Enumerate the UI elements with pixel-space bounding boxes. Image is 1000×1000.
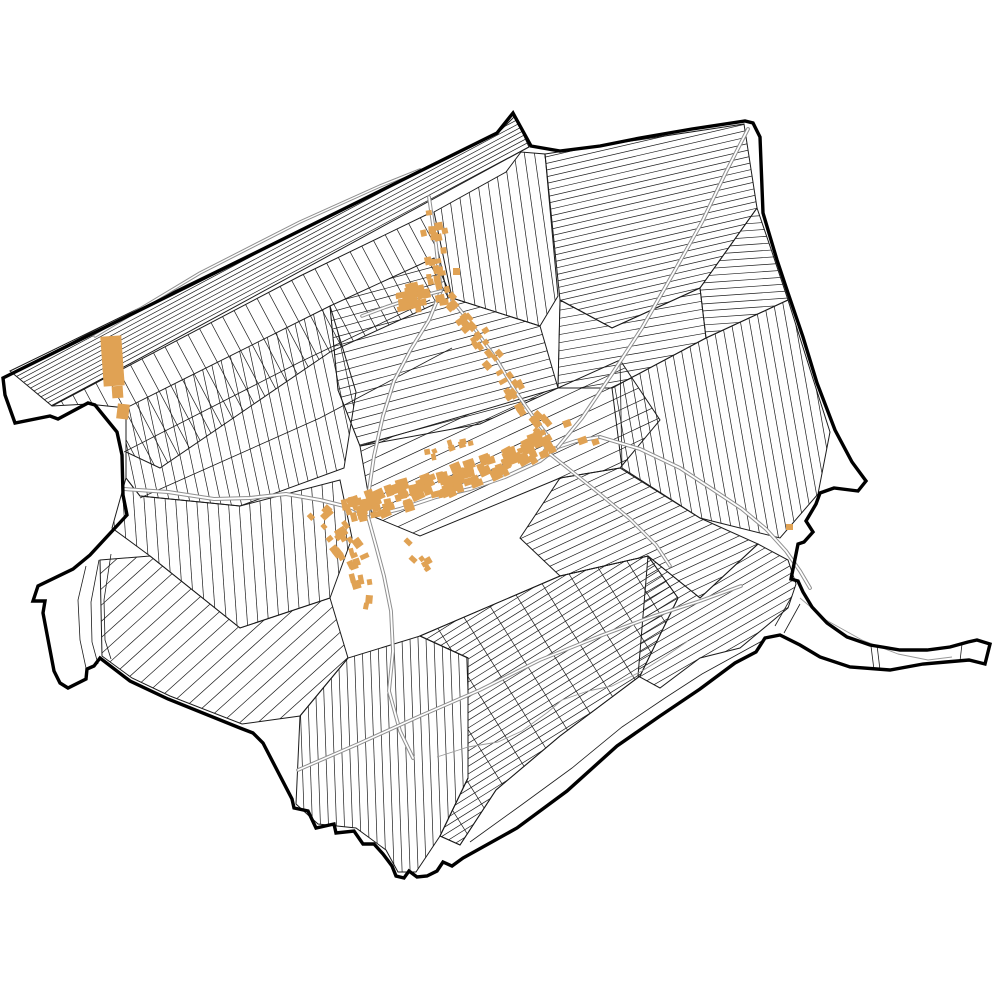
building (116, 403, 130, 419)
building (453, 268, 460, 275)
building (365, 595, 373, 604)
building (440, 247, 447, 254)
map-container (0, 0, 1000, 1000)
building (431, 232, 439, 239)
map-background-layer (0, 0, 1000, 1000)
building (786, 524, 793, 530)
page: { "map": { "canvas": { "width": 1000, "h… (0, 0, 1000, 1000)
building (424, 449, 431, 456)
building (112, 386, 124, 399)
building (367, 579, 373, 585)
building (427, 278, 434, 285)
cadastral-map-svg (0, 0, 1000, 1000)
building (426, 274, 431, 280)
building (100, 335, 124, 386)
building (441, 227, 448, 234)
building (415, 303, 422, 313)
building (426, 210, 433, 216)
